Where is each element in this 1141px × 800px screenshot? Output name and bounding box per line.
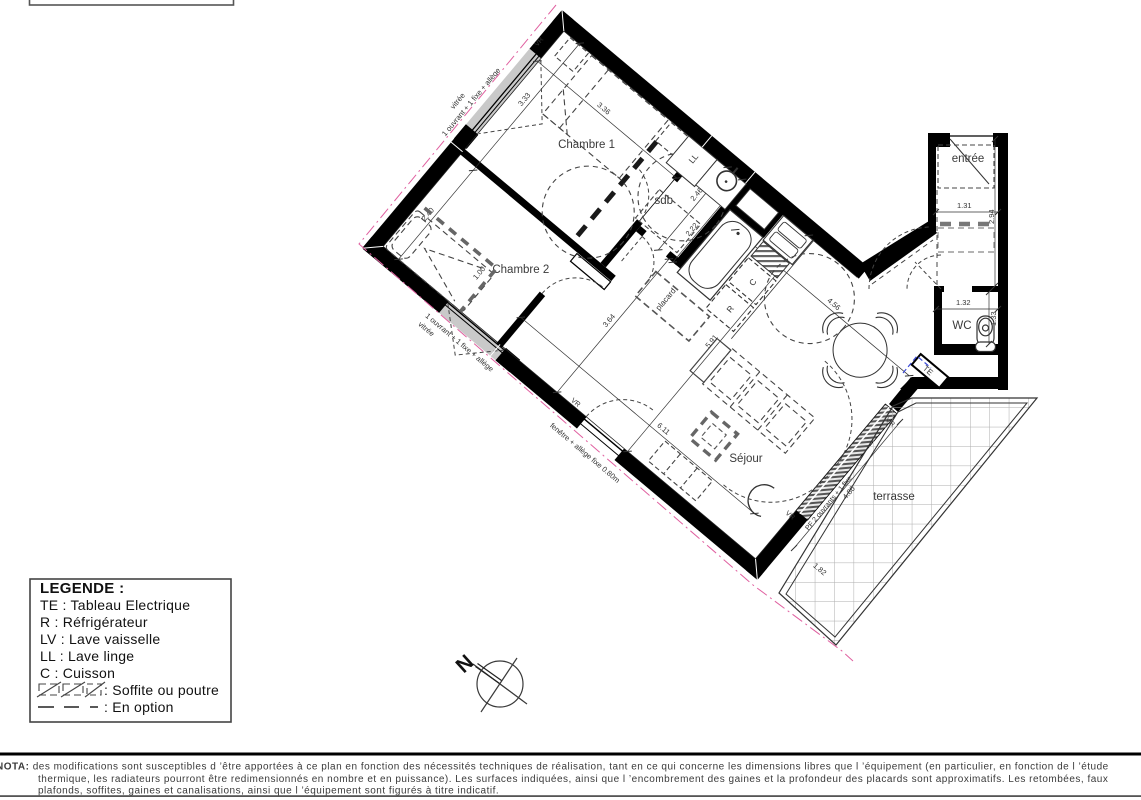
svg-text:: En option: : En option: [104, 699, 174, 715]
svg-text:4.56: 4.56: [825, 296, 842, 312]
svg-text:Chambre 1: Chambre 1: [558, 139, 615, 151]
svg-text:LEGENDE :: LEGENDE :: [40, 580, 124, 597]
svg-text:placard: placard: [654, 286, 678, 312]
svg-text:entrée: entrée: [952, 153, 985, 165]
svg-text:6.11: 6.11: [655, 421, 672, 437]
svg-text:3.33: 3.33: [516, 91, 532, 108]
svg-text:1.31: 1.31: [957, 201, 972, 210]
svg-text:Séjour: Séjour: [729, 453, 762, 465]
svg-text:sdb: sdb: [655, 195, 674, 207]
svg-text:NOTA: des modifications sont s: NOTA: des modifications sont susceptible…: [0, 762, 1109, 773]
svg-text:1.32: 1.32: [956, 298, 971, 307]
svg-text:C: C: [747, 277, 759, 288]
svg-text:Chambre 2: Chambre 2: [492, 264, 549, 276]
svg-text:R: R: [724, 303, 736, 314]
svg-text:WC: WC: [952, 320, 971, 332]
svg-text:3.64: 3.64: [601, 312, 617, 329]
svg-text:2.94: 2.94: [987, 209, 996, 224]
svg-text:terrasse: terrasse: [873, 491, 915, 503]
svg-text:: Soffite ou poutre: : Soffite ou poutre: [104, 682, 219, 698]
svg-text:1.33: 1.33: [989, 311, 998, 326]
svg-text:3.36: 3.36: [595, 100, 612, 116]
svg-text:N: N: [452, 650, 479, 677]
svg-text:LL : Lave linge: LL : Lave linge: [40, 648, 134, 664]
svg-text:C : Cuisson: C : Cuisson: [40, 665, 115, 681]
svg-text:plafonds, soffites, gaines et: plafonds, soffites, gaines et canalisati…: [38, 786, 499, 797]
svg-text:thermique, les radiateurs pour: thermique, les radiateurs pourront être …: [38, 774, 1108, 785]
svg-text:TE : Tableau Electrique: TE : Tableau Electrique: [40, 597, 190, 613]
svg-text:LV : Lave vaisselle: LV : Lave vaisselle: [40, 631, 160, 647]
svg-text:5.91: 5.91: [703, 333, 719, 350]
svg-text:R : Réfrigérateur: R : Réfrigérateur: [40, 614, 148, 630]
